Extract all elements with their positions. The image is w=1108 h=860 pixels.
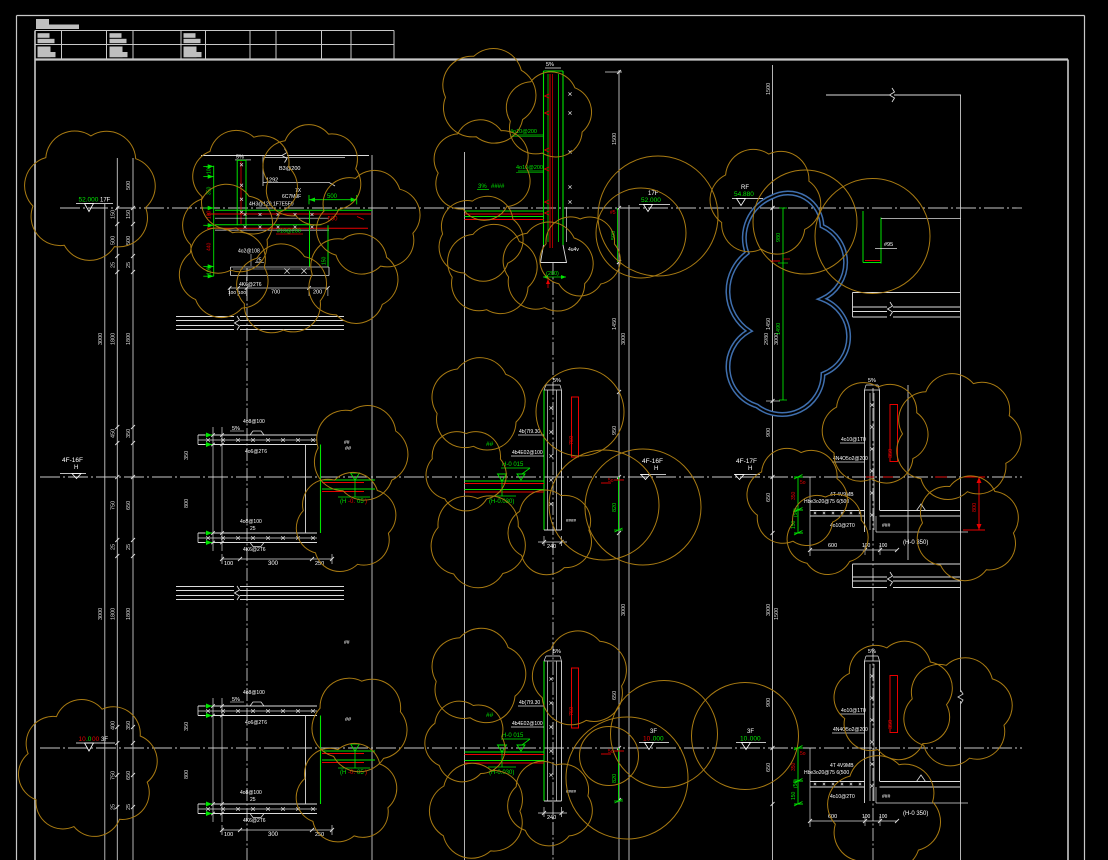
svg-text:4o10@2T0: 4o10@2T0 — [830, 794, 855, 800]
svg-text:(H-0.030): (H-0.030) — [489, 499, 514, 505]
svg-text:650: 650 — [766, 493, 772, 502]
svg-text:100: 100 — [862, 814, 871, 820]
svg-text:6C7M9F: 6C7M9F — [282, 194, 301, 200]
svg-text:5%: 5% — [553, 378, 561, 384]
svg-text:Hbe3o20@75 6(500: Hbe3o20@75 6(500 — [804, 499, 849, 505]
svg-text:3F: 3F — [650, 729, 657, 735]
svg-text:3F: 3F — [101, 737, 108, 743]
svg-text:10: 10 — [740, 736, 748, 743]
svg-text:1450: 1450 — [612, 318, 618, 330]
svg-text:4o6@2T6: 4o6@2T6 — [245, 720, 267, 726]
svg-text:350: 350 — [791, 491, 797, 500]
svg-text:5o: 5o — [800, 480, 806, 486]
svg-text:750: 750 — [111, 501, 117, 510]
svg-text:4b4E02@100: 4b4E02@100 — [512, 721, 543, 727]
svg-text:350: 350 — [126, 429, 132, 438]
svg-text:900: 900 — [766, 428, 772, 437]
svg-text:##: ## — [486, 712, 494, 719]
svg-text:3%: 3% — [478, 184, 487, 190]
svg-text:1450: 1450 — [766, 318, 772, 330]
svg-text:B3@200: B3@200 — [279, 166, 301, 172]
svg-text:4F-17F: 4F-17F — [736, 458, 757, 465]
svg-text:H-0 015: H-0 015 — [502, 733, 524, 739]
svg-text:4o10@1T0: 4o10@1T0 — [841, 708, 866, 714]
svg-text:240: 240 — [547, 815, 556, 821]
svg-text:Hbe3o20@75 6(500: Hbe3o20@75 6(500 — [804, 770, 849, 776]
svg-text:###: ### — [882, 523, 891, 529]
svg-text:5%: 5% — [553, 649, 561, 655]
svg-text:500: 500 — [126, 181, 132, 190]
svg-text:4K6@2T6: 4K6@2T6 — [243, 547, 266, 553]
svg-text:1800: 1800 — [111, 608, 117, 620]
svg-text:10: 10 — [79, 736, 87, 743]
svg-text:1500: 1500 — [612, 133, 618, 145]
svg-text:25: 25 — [111, 544, 117, 550]
svg-text:600: 600 — [828, 543, 837, 549]
svg-text:700: 700 — [271, 290, 280, 296]
svg-text:440: 440 — [207, 242, 213, 251]
svg-text:750: 750 — [569, 707, 575, 716]
svg-text:(H: (H — [340, 770, 346, 776]
svg-text:4F-16F: 4F-16F — [62, 457, 83, 464]
svg-text:980: 980 — [776, 233, 782, 242]
svg-text:1800: 1800 — [126, 608, 132, 620]
svg-text:4N4O5o2@200: 4N4O5o2@200 — [833, 727, 868, 733]
svg-text:240: 240 — [547, 544, 556, 550]
svg-text:4o10@200: 4o10@200 — [510, 129, 537, 135]
svg-text:800: 800 — [184, 770, 190, 779]
svg-text:.000: .000 — [748, 736, 761, 743]
svg-text:H: H — [748, 466, 752, 472]
svg-text:4H3@120 1F7E5F0: 4H3@120 1F7E5F0 — [249, 202, 294, 208]
svg-text:100: 100 — [228, 290, 236, 296]
svg-text:4o10@1T0: 4o10@1T0 — [841, 437, 866, 443]
svg-text:3000: 3000 — [621, 604, 627, 616]
svg-text:3000: 3000 — [98, 608, 104, 620]
svg-text:(50): (50) — [793, 779, 799, 788]
svg-text:750: 750 — [111, 771, 117, 780]
svg-text:650: 650 — [126, 501, 132, 510]
svg-text:1490: 1490 — [776, 323, 782, 335]
svg-text:H: H — [654, 466, 658, 472]
svg-text:####: #### — [491, 184, 505, 190]
svg-text:##: ## — [345, 717, 352, 723]
svg-text:950: 950 — [612, 426, 618, 435]
svg-text:350: 350 — [184, 451, 190, 460]
svg-text:H: H — [74, 465, 78, 471]
svg-text:17F: 17F — [100, 198, 111, 204]
svg-text:4b(7I9.30: 4b(7I9.30 — [519, 700, 540, 706]
svg-text:820: 820 — [612, 774, 618, 783]
svg-text:3000: 3000 — [621, 333, 627, 345]
svg-text:###: ### — [882, 794, 891, 800]
svg-text:00: 00 — [92, 736, 100, 743]
svg-text:450: 450 — [111, 429, 117, 438]
svg-text:##: ## — [345, 446, 352, 452]
svg-text:650: 650 — [126, 771, 132, 780]
svg-text:500: 500 — [111, 236, 117, 245]
svg-text:4K6@2T6: 4K6@2T6 — [239, 282, 262, 288]
svg-text:4b4E02@100: 4b4E02@100 — [512, 450, 543, 456]
svg-text:25: 25 — [250, 526, 256, 532]
svg-text:4K6@2T6: 4K6@2T6 — [243, 818, 266, 824]
svg-text:150: 150 — [111, 210, 117, 219]
svg-text:25: 25 — [111, 804, 117, 810]
svg-text:4N4O5o2@200: 4N4O5o2@200 — [833, 456, 868, 462]
svg-text:3000: 3000 — [766, 604, 772, 616]
svg-text:(H-0 350): (H-0 350) — [903, 540, 928, 546]
svg-text:5o: 5o — [608, 478, 614, 484]
svg-text:150: 150 — [126, 210, 132, 219]
svg-text:1500: 1500 — [766, 83, 772, 95]
svg-text:650: 650 — [766, 763, 772, 772]
svg-text:150: 150 — [322, 256, 328, 265]
svg-text:4F-16F: 4F-16F — [642, 458, 663, 465]
svg-text:##: ## — [486, 441, 494, 448]
svg-text:820: 820 — [612, 503, 618, 512]
svg-text:100: 100 — [224, 832, 233, 838]
svg-text:10: 10 — [643, 736, 651, 743]
svg-text:4o10@2T0: 4o10@2T0 — [830, 523, 855, 529]
svg-text:1800: 1800 — [126, 333, 132, 345]
svg-text:100: 100 — [207, 165, 213, 174]
svg-text:3F: 3F — [747, 729, 754, 735]
svg-text:750: 750 — [569, 436, 575, 445]
svg-text:180: 180 — [207, 210, 213, 219]
svg-text:1800: 1800 — [111, 333, 117, 345]
svg-text:150: 150 — [791, 791, 797, 800]
svg-text:.0: .0 — [86, 736, 92, 743]
svg-text:1500: 1500 — [774, 608, 780, 620]
svg-text:400: 400 — [111, 721, 117, 730]
svg-text:(H-0 350): (H-0 350) — [903, 811, 928, 817]
svg-text:200: 200 — [313, 290, 322, 296]
svg-text:25: 25 — [126, 804, 132, 810]
svg-text:(200): (200) — [546, 271, 559, 277]
svg-text:300: 300 — [268, 832, 279, 838]
svg-text:5%: 5% — [546, 62, 554, 68]
svg-text:500: 500 — [327, 194, 338, 200]
svg-text:4T 4V9MB: 4T 4V9MB — [830, 763, 854, 769]
svg-text:100: 100 — [238, 290, 246, 296]
svg-text:#95: #95 — [884, 242, 893, 248]
svg-text:.000: .000 — [651, 736, 664, 743]
svg-text:4o8@100: 4o8@100 — [243, 419, 265, 425]
svg-text:54.880: 54.880 — [734, 191, 754, 198]
svg-text:##: ## — [344, 640, 350, 646]
svg-text:4b(7I9.30: 4b(7I9.30 — [519, 429, 540, 435]
svg-text:####: #### — [566, 518, 577, 523]
svg-text:4o8@100: 4o8@100 — [243, 690, 265, 696]
svg-text:800: 800 — [972, 503, 978, 512]
svg-text:25: 25 — [111, 262, 117, 268]
svg-text:4o8@100: 4o8@100 — [240, 790, 262, 796]
svg-text:900: 900 — [766, 698, 772, 707]
svg-text:05: 05 — [357, 770, 364, 776]
svg-text:100: 100 — [224, 561, 233, 567]
svg-text:350: 350 — [126, 721, 132, 730]
svg-text:4o6@2T6: 4o6@2T6 — [245, 449, 267, 455]
svg-text:4u4v: 4u4v — [568, 247, 579, 253]
svg-text:300: 300 — [268, 561, 279, 567]
svg-text:4o8@100: 4o8@100 — [240, 519, 262, 525]
svg-text:25: 25 — [126, 262, 132, 268]
svg-text:-0.: -0. — [348, 499, 355, 505]
svg-text:3000: 3000 — [98, 333, 104, 345]
svg-text:350: 350 — [888, 720, 894, 729]
svg-text:#5: #5 — [610, 210, 616, 216]
svg-text:650: 650 — [612, 691, 618, 700]
svg-text:25: 25 — [126, 544, 132, 550]
svg-text:2980: 2980 — [764, 333, 770, 345]
svg-text:52.000: 52.000 — [641, 197, 661, 204]
svg-text:4o10@200: 4o10@200 — [516, 165, 543, 171]
svg-text:350: 350 — [184, 722, 190, 731]
svg-text:5o: 5o — [800, 751, 806, 757]
svg-text:5%: 5% — [868, 649, 876, 655]
svg-text:25: 25 — [250, 797, 256, 803]
svg-text:52.000: 52.000 — [79, 197, 99, 204]
svg-text:350: 350 — [888, 449, 894, 458]
svg-text:##: ## — [344, 440, 350, 446]
svg-text:350: 350 — [791, 762, 797, 771]
svg-text:4o2@108: 4o2@108 — [238, 249, 260, 255]
svg-text:(H: (H — [340, 499, 346, 505]
svg-text:800: 800 — [184, 499, 190, 508]
